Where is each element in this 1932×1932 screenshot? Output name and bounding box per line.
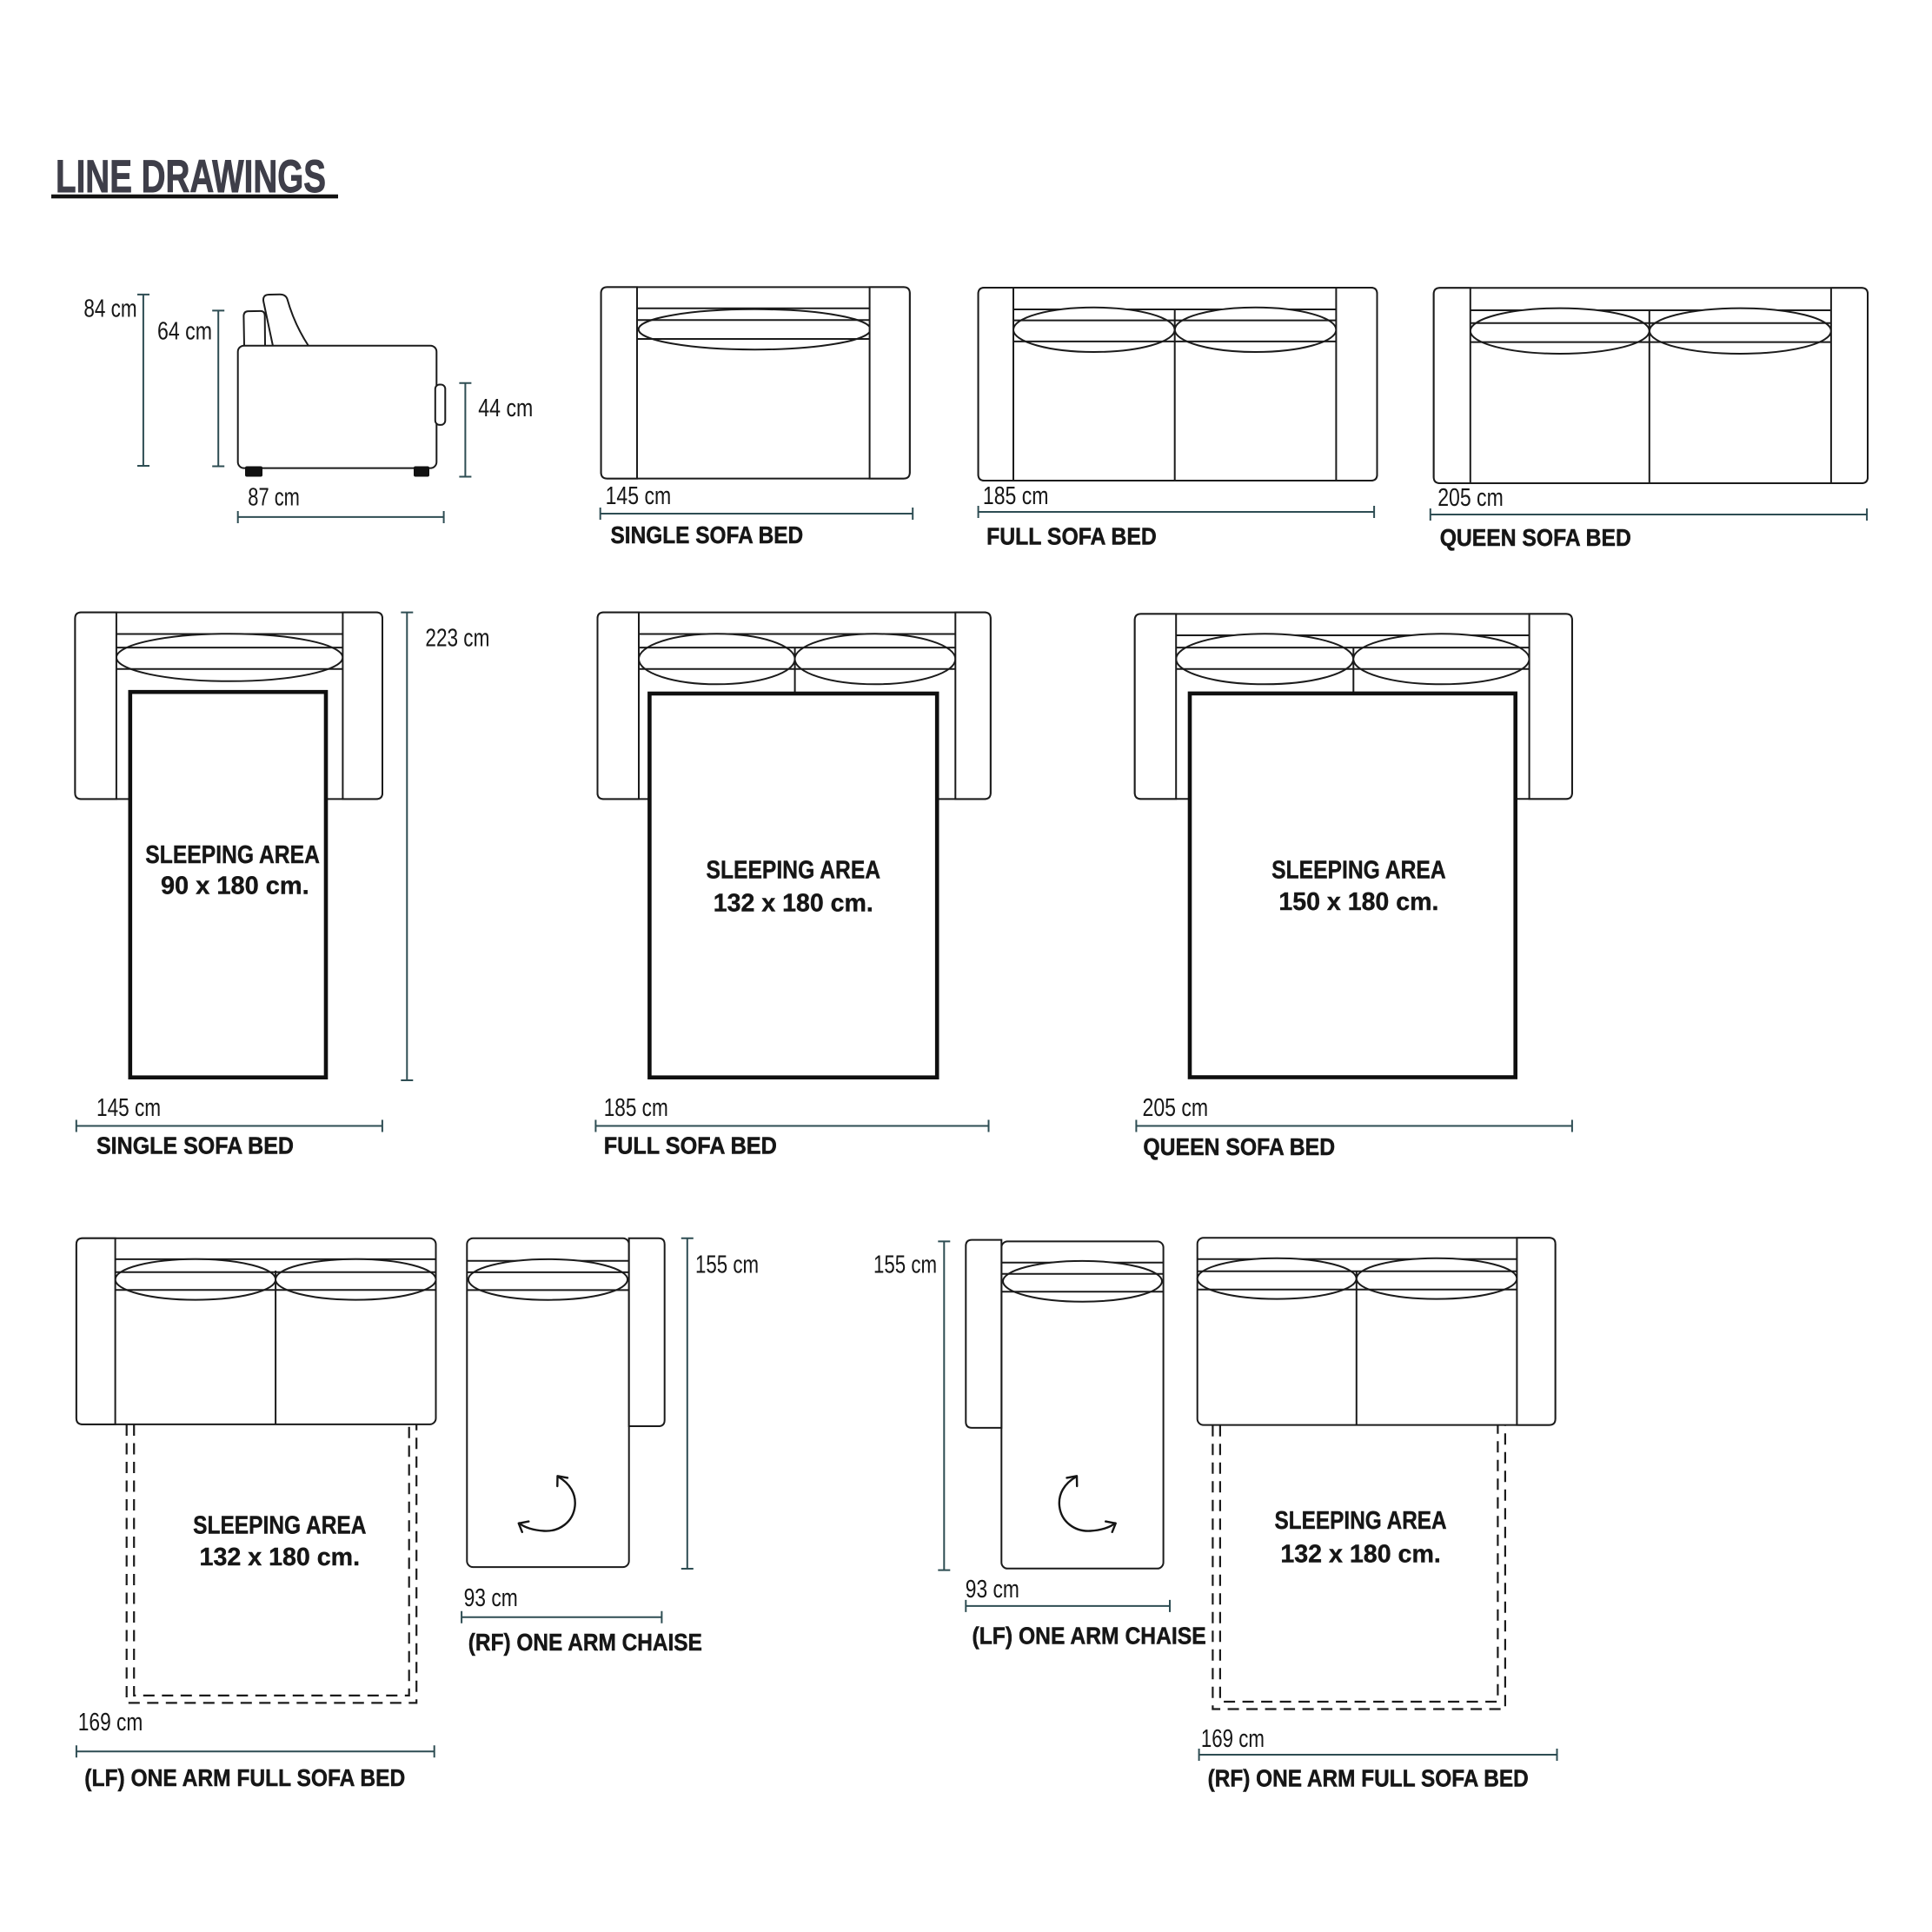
svg-text:205 cm: 205 cm bbox=[1143, 1094, 1209, 1122]
svg-text:93 cm: 93 cm bbox=[966, 1576, 1019, 1603]
svg-text:132 x 180 cm.: 132 x 180 cm. bbox=[200, 1544, 361, 1571]
svg-text:185 cm: 185 cm bbox=[983, 482, 1049, 510]
svg-text:(RF) ONE ARM CHAISE: (RF) ONE ARM CHAISE bbox=[468, 1629, 702, 1656]
svg-text:87 cm: 87 cm bbox=[248, 484, 300, 512]
svg-text:QUEEN SOFA BED: QUEEN SOFA BED bbox=[1440, 524, 1631, 551]
svg-text:155 cm: 155 cm bbox=[695, 1251, 759, 1279]
svg-text:150 x 180 cm.: 150 x 180 cm. bbox=[1278, 888, 1438, 916]
svg-text:169 cm: 169 cm bbox=[78, 1709, 143, 1736]
svg-text:SINGLE SOFA BED: SINGLE SOFA BED bbox=[96, 1132, 294, 1159]
svg-text:SLEEPING AREA: SLEEPING AREA bbox=[145, 841, 320, 869]
svg-text:FULL SOFA BED: FULL SOFA BED bbox=[604, 1132, 777, 1159]
svg-text:84 cm: 84 cm bbox=[83, 295, 136, 323]
svg-text:SLEEPING AREA: SLEEPING AREA bbox=[1271, 856, 1446, 884]
svg-text:185 cm: 185 cm bbox=[604, 1094, 668, 1122]
svg-text:QUEEN SOFA BED: QUEEN SOFA BED bbox=[1143, 1133, 1335, 1160]
svg-text:FULL SOFA BED: FULL SOFA BED bbox=[986, 523, 1157, 550]
svg-text:145 cm: 145 cm bbox=[606, 482, 672, 510]
svg-text:132 x 180 cm.: 132 x 180 cm. bbox=[714, 889, 873, 917]
svg-text:145 cm: 145 cm bbox=[96, 1094, 161, 1122]
svg-text:64 cm: 64 cm bbox=[157, 318, 212, 346]
svg-text:169 cm: 169 cm bbox=[1201, 1725, 1265, 1753]
svg-text:SLEEPING AREA: SLEEPING AREA bbox=[193, 1512, 366, 1540]
svg-text:44 cm: 44 cm bbox=[478, 395, 533, 422]
svg-text:SLEEPING AREA: SLEEPING AREA bbox=[1275, 1507, 1447, 1535]
svg-text:90 x 180 cm.: 90 x 180 cm. bbox=[161, 872, 309, 900]
svg-text:205 cm: 205 cm bbox=[1437, 484, 1504, 512]
svg-text:SLEEPING AREA: SLEEPING AREA bbox=[707, 856, 881, 884]
svg-text:155 cm: 155 cm bbox=[873, 1251, 937, 1279]
svg-text:(LF) ONE ARM FULL SOFA BED: (LF) ONE ARM FULL SOFA BED bbox=[84, 1764, 405, 1791]
svg-text:(LF) ONE ARM CHAISE: (LF) ONE ARM CHAISE bbox=[973, 1622, 1206, 1649]
svg-text:132 x 180 cm.: 132 x 180 cm. bbox=[1280, 1540, 1441, 1568]
svg-text:93 cm: 93 cm bbox=[464, 1584, 518, 1612]
svg-text:SINGLE SOFA BED: SINGLE SOFA BED bbox=[611, 521, 804, 548]
svg-text:(RF) ONE ARM FULL SOFA BED: (RF) ONE ARM FULL SOFA BED bbox=[1208, 1765, 1529, 1792]
svg-text:223 cm: 223 cm bbox=[425, 624, 489, 652]
